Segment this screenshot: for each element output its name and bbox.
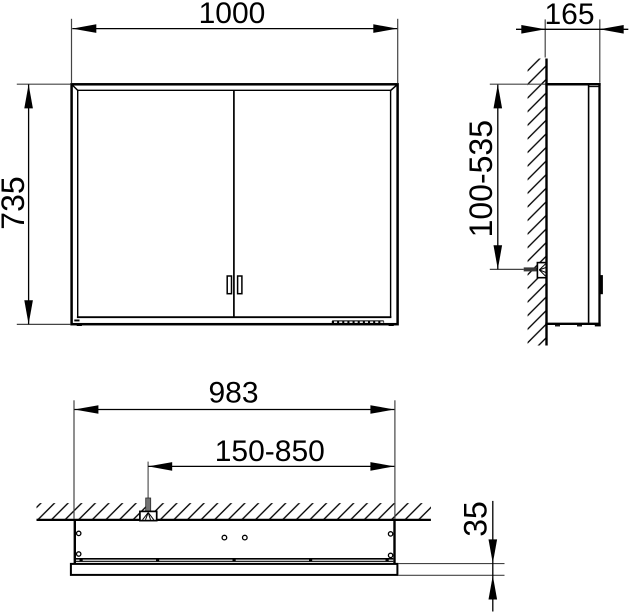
svg-text:150-850: 150-850 (215, 435, 325, 468)
svg-text:983: 983 (208, 377, 258, 410)
svg-text:735: 735 (0, 176, 31, 229)
svg-text:100-535: 100-535 (463, 120, 499, 237)
svg-text:35: 35 (458, 501, 494, 537)
svg-text:1000: 1000 (199, 0, 266, 30)
svg-text:165: 165 (544, 0, 594, 31)
